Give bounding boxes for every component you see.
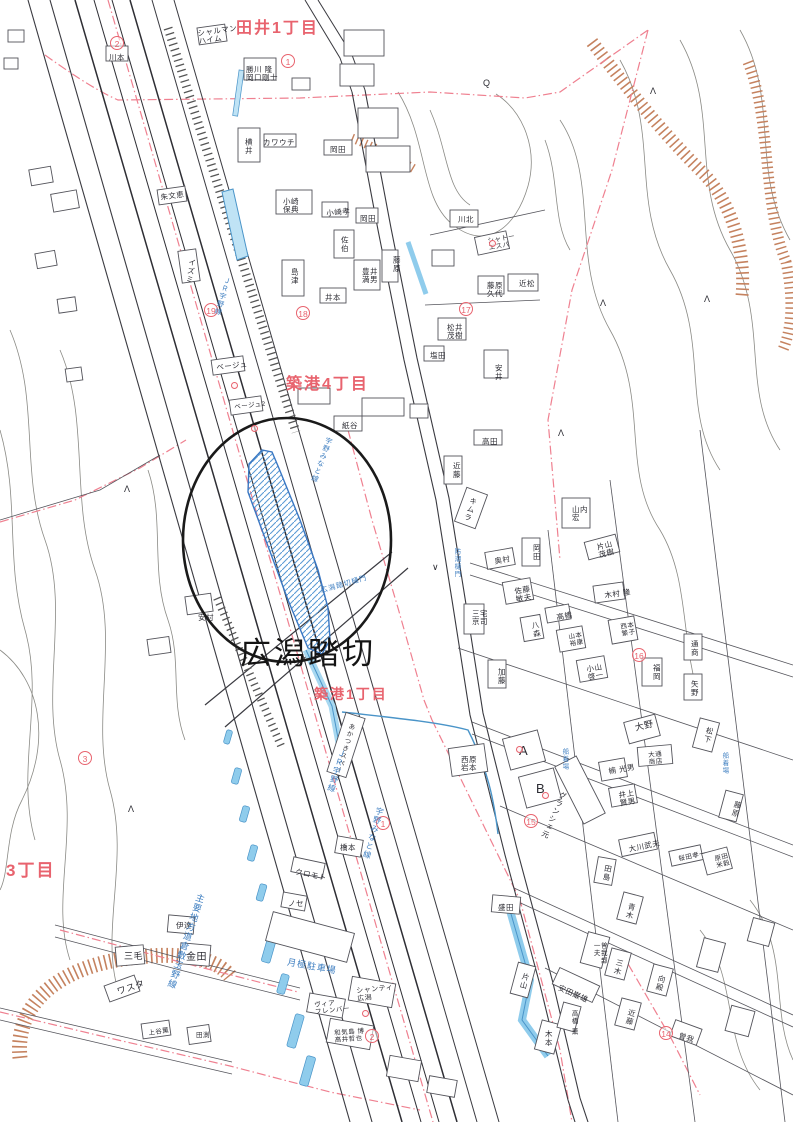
- building-footprint: [358, 108, 398, 138]
- building-footprint: [348, 976, 395, 1007]
- building-footprint: [197, 24, 227, 45]
- median-bar: [247, 844, 258, 861]
- building-footprint: [669, 845, 703, 866]
- building-footprint: [510, 962, 536, 998]
- building-footprint: [488, 660, 506, 688]
- building-footprint: [344, 30, 384, 56]
- building-footprint: [584, 534, 620, 560]
- building-footprint: [485, 548, 516, 570]
- building-footprint: [354, 260, 380, 290]
- building-footprint: [684, 674, 702, 700]
- building-footprint: [244, 58, 276, 80]
- building-footprint: [29, 166, 53, 186]
- building-footprint: [424, 346, 444, 361]
- building-footprint: [106, 46, 128, 61]
- building-footprint: [362, 398, 404, 416]
- building-footprint: [157, 186, 187, 205]
- contour-lines: [0, 30, 793, 1090]
- building-footprint: [474, 231, 509, 255]
- building-footprint: [719, 790, 744, 822]
- building-footprint: [450, 210, 478, 227]
- building-footprint: [264, 134, 296, 147]
- building-footprint: [438, 318, 466, 340]
- building-footprint: [455, 487, 488, 528]
- building-footprint: [619, 832, 658, 856]
- building-footprint: [725, 1005, 755, 1036]
- building-footprint: [238, 128, 260, 162]
- median-bar: [223, 729, 233, 744]
- building-footprint: [340, 64, 374, 86]
- building-footprint: [326, 1018, 373, 1049]
- building-footprint: [178, 249, 200, 283]
- building-footprint: [670, 1020, 702, 1046]
- building-footprint: [432, 250, 454, 266]
- building-footprint: [147, 637, 171, 656]
- building-footprint: [552, 968, 599, 1003]
- building-footprint: [696, 938, 725, 973]
- building-footprint: [615, 998, 642, 1030]
- building-footprint: [386, 1055, 421, 1081]
- building-footprint: [8, 30, 24, 42]
- building-footprint: [478, 276, 504, 294]
- building-footprint: [4, 58, 18, 69]
- building-footprint: [320, 288, 346, 303]
- building-footprint: [334, 416, 362, 431]
- building-footprint: [484, 350, 508, 378]
- crossing-name-label: 広潟踏切: [240, 628, 376, 673]
- building-footprint: [307, 993, 346, 1018]
- building-footprint: [502, 578, 533, 605]
- building-footprint: [747, 918, 774, 947]
- building-footprint: [520, 614, 544, 641]
- building-footprint: [292, 78, 310, 90]
- median-bar: [299, 1055, 316, 1086]
- building-footprint: [382, 250, 398, 282]
- building-footprint: [410, 404, 428, 418]
- building-footprint: [179, 943, 211, 967]
- building-footprint: [366, 146, 410, 172]
- building-footprint: [576, 656, 607, 683]
- building-footprint: [444, 456, 462, 484]
- median-bar: [286, 1013, 304, 1048]
- building-footprint: [624, 714, 661, 744]
- building-footprint: [298, 388, 330, 404]
- building-footprint: [141, 1020, 171, 1039]
- building-footprint: [57, 297, 77, 313]
- building-footprint: [115, 945, 145, 966]
- building-footprint: [491, 895, 520, 914]
- slope-hatch-symbols: [19, 42, 790, 1058]
- building-footprint: [617, 892, 644, 924]
- building-footprint: [580, 932, 610, 969]
- median-bar: [231, 767, 242, 784]
- building-footprint: [562, 498, 590, 528]
- building-footprint: [464, 604, 484, 634]
- building-footprint: [545, 604, 571, 623]
- building-footprint: [637, 745, 673, 767]
- building-footprint: [334, 230, 354, 258]
- building-footprint: [702, 847, 733, 875]
- map-drawing: [0, 0, 793, 1122]
- building-footprint: [518, 768, 561, 808]
- building-footprint: [647, 964, 674, 996]
- building-footprint: [593, 582, 625, 603]
- building-footprint: [65, 367, 83, 382]
- building-footprint: [281, 892, 307, 911]
- building-footprint: [608, 616, 638, 644]
- building-footprint: [474, 430, 502, 445]
- median-bar: [276, 973, 289, 994]
- building-footprint: [684, 634, 702, 660]
- building-footprint: [291, 857, 325, 878]
- building-footprint: [282, 260, 304, 296]
- building-footprint: [276, 190, 312, 214]
- building-footprint: [266, 912, 355, 963]
- building-footprint: [605, 948, 632, 980]
- building-footprint: [692, 718, 719, 752]
- building-footprint: [104, 975, 140, 1002]
- building-footprint: [508, 274, 538, 291]
- building-footprint: [322, 202, 348, 217]
- building-footprint: [594, 857, 616, 886]
- building-footprint: [356, 208, 378, 223]
- building-footprint: [522, 538, 540, 566]
- building-footprint: [556, 626, 585, 652]
- building-footprint: [187, 1025, 211, 1045]
- median-bar: [256, 883, 267, 901]
- building-footprint: [35, 250, 57, 268]
- cadastral-map: 田井1丁目築港4丁目築港1丁目3丁目21191817316151142シャルマン…: [0, 0, 793, 1122]
- building-footprint: [557, 1002, 581, 1032]
- building-footprint: [555, 756, 605, 824]
- building-footprint: [167, 915, 194, 934]
- building-footprint: [229, 396, 263, 415]
- building-footprint: [609, 784, 638, 807]
- median-bar: [239, 805, 250, 822]
- building-footprint: [51, 190, 80, 212]
- building-footprint: [448, 744, 488, 777]
- building-footprint: [599, 758, 628, 781]
- building-footprint: [324, 140, 352, 155]
- building-footprint: [642, 658, 662, 686]
- building-footprint: [335, 836, 364, 857]
